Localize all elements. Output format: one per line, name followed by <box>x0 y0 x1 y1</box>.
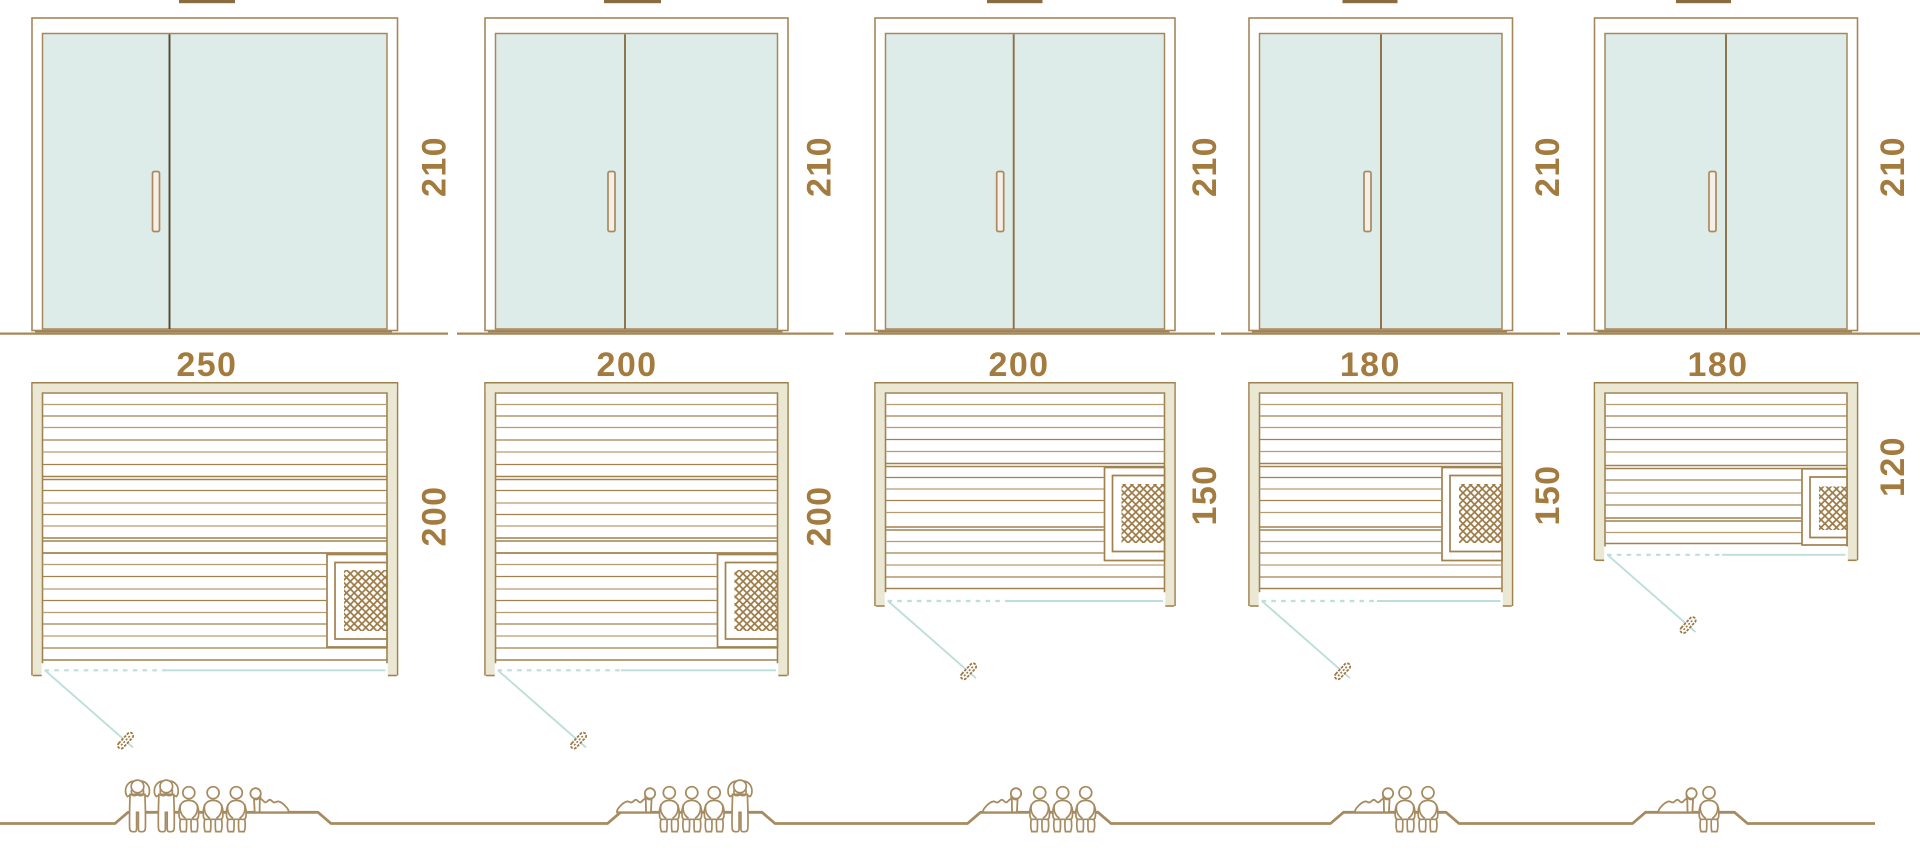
svg-text:210: 210 <box>1874 136 1912 197</box>
svg-text:210: 210 <box>416 136 454 197</box>
svg-text:210: 210 <box>1529 136 1567 197</box>
svg-text:150: 150 <box>1529 465 1567 526</box>
svg-text:250: 250 <box>176 346 237 384</box>
svg-text:120: 120 <box>1874 436 1912 497</box>
svg-text:180: 180 <box>1688 346 1749 384</box>
svg-text:210: 210 <box>1186 136 1224 197</box>
svg-text:200: 200 <box>416 486 454 547</box>
svg-text:210: 210 <box>801 136 839 197</box>
svg-text:180: 180 <box>1340 346 1401 384</box>
svg-text:150: 150 <box>1186 465 1224 526</box>
svg-text:200: 200 <box>597 346 658 384</box>
svg-text:200: 200 <box>989 346 1050 384</box>
svg-text:200: 200 <box>801 486 839 547</box>
